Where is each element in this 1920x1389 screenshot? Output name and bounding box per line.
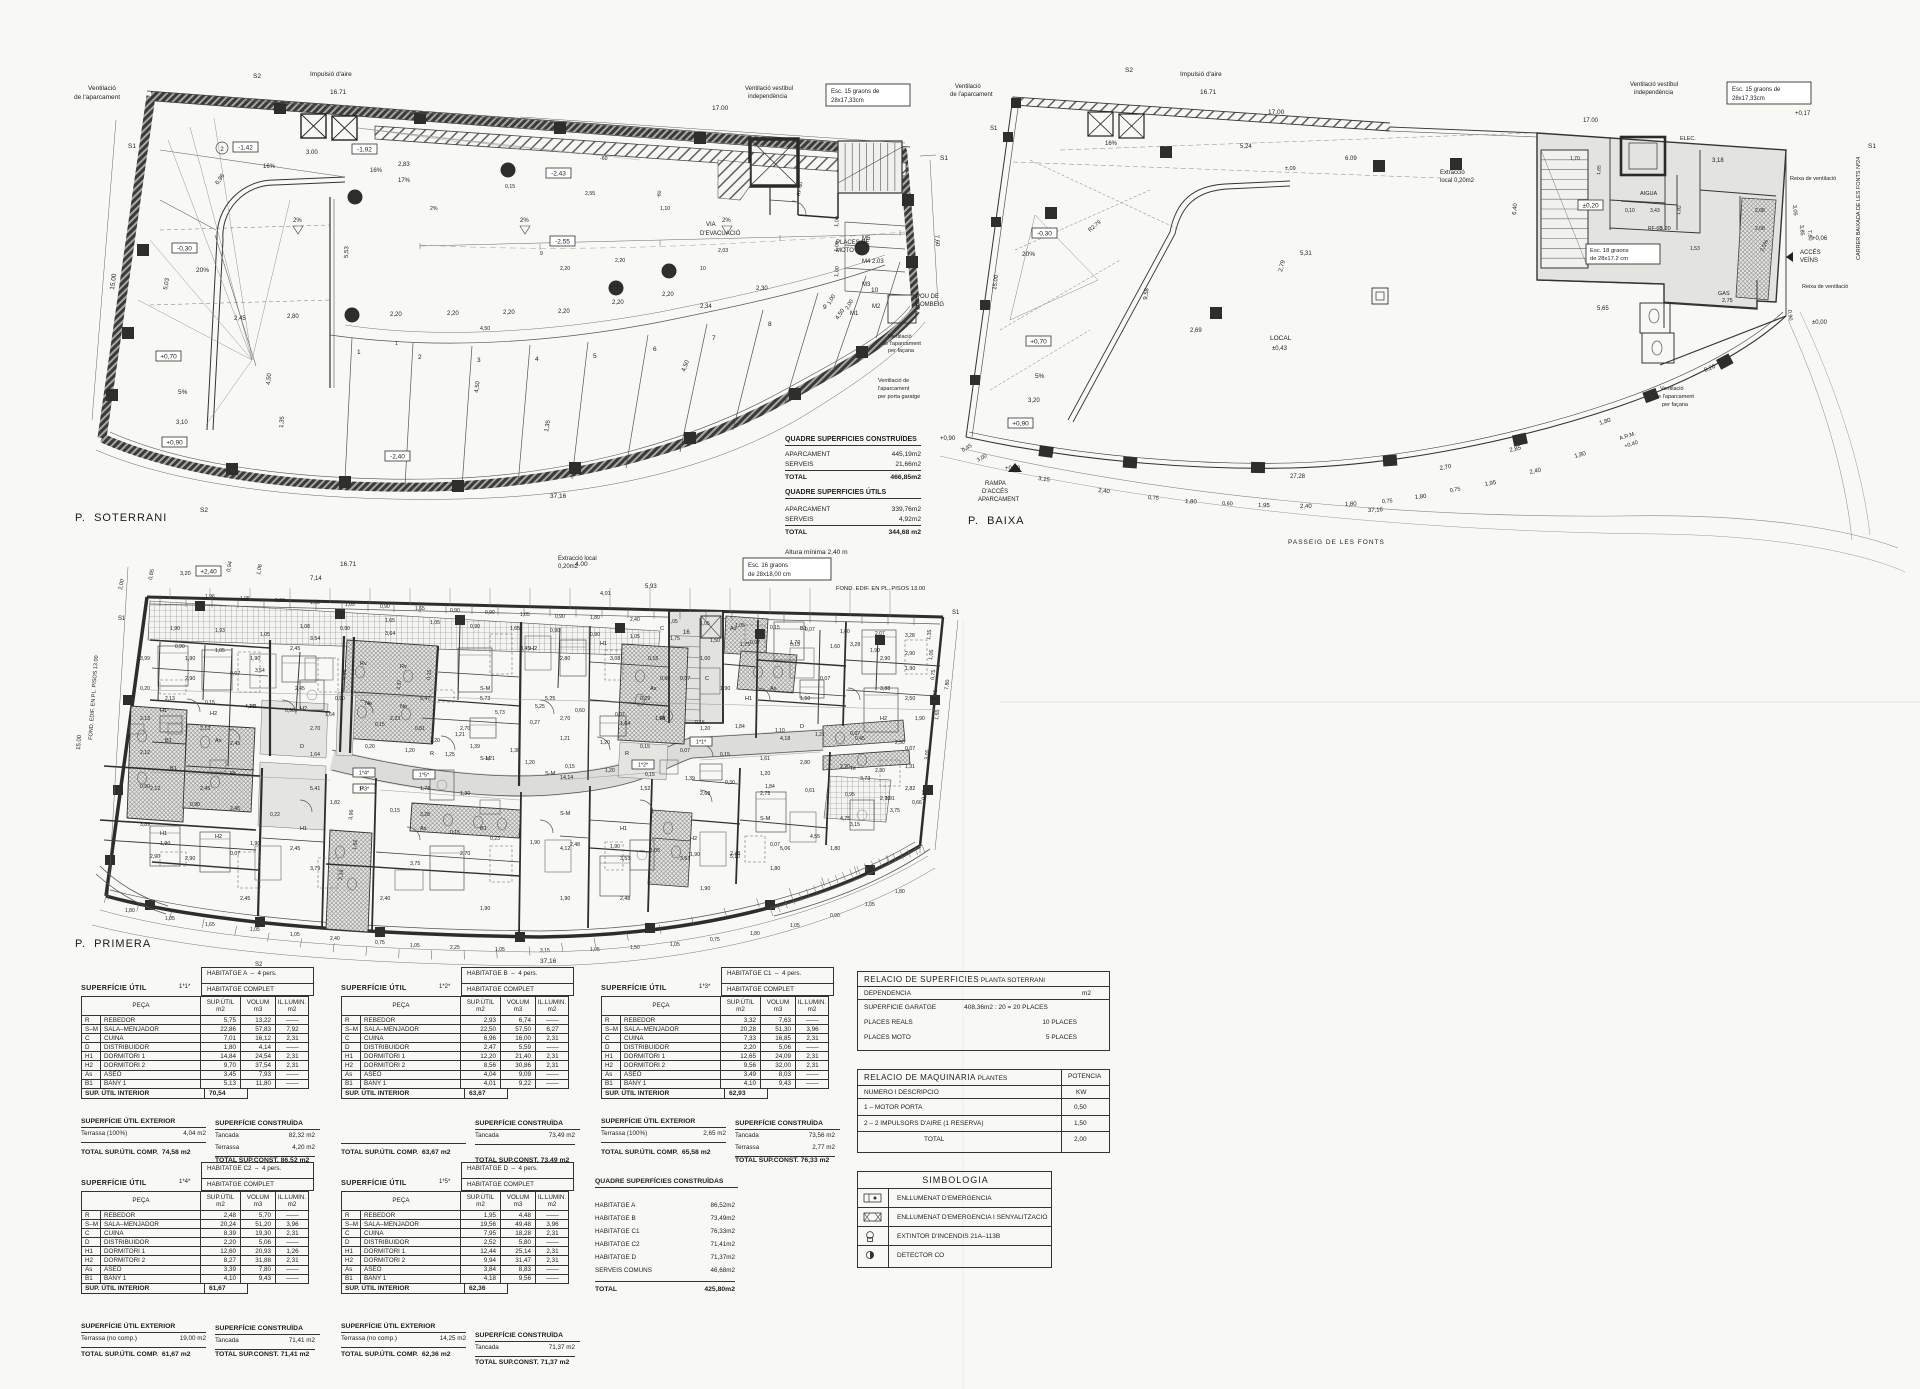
svg-text:0,60: 0,60 xyxy=(575,708,585,714)
svg-text:2,20: 2,20 xyxy=(612,300,624,306)
svg-text:1*2*: 1*2* xyxy=(638,763,649,769)
svg-text:1,05: 1,05 xyxy=(430,620,440,626)
svg-text:1,25: 1,25 xyxy=(445,752,455,758)
svg-text:H2: H2 xyxy=(690,836,697,842)
svg-text:2,90: 2,90 xyxy=(185,676,195,682)
svg-text:local 0,20m2: local 0,20m2 xyxy=(1440,178,1475,184)
svg-text:0,90: 0,90 xyxy=(485,610,495,616)
svg-text:10: 10 xyxy=(700,266,706,272)
svg-text:5,93: 5,93 xyxy=(645,584,657,590)
svg-text:R: R xyxy=(625,751,629,757)
svg-text:2,40: 2,40 xyxy=(630,617,640,623)
svg-text:1,20: 1,20 xyxy=(700,726,710,732)
svg-text:de 28x18,00 cm: de 28x18,00 cm xyxy=(748,572,791,578)
svg-text:2,40: 2,40 xyxy=(380,896,390,902)
svg-text:2,45: 2,45 xyxy=(290,846,300,852)
svg-text:1,05: 1,05 xyxy=(345,602,355,608)
svg-text:1,39: 1,39 xyxy=(685,776,695,782)
svg-text:0,22: 0,22 xyxy=(270,812,280,818)
svg-text:3,15: 3,15 xyxy=(850,822,860,828)
svg-text:3,85: 3,85 xyxy=(1798,225,1805,236)
svg-text:±0,00: ±0,00 xyxy=(1812,320,1828,326)
svg-text:Esc. 15 graons de: Esc. 15 graons de xyxy=(831,89,880,95)
svg-text:H1: H1 xyxy=(300,826,307,832)
svg-text:1,90: 1,90 xyxy=(700,886,710,892)
svg-text:1,21: 1,21 xyxy=(485,756,495,762)
svg-text:-1,92: -1,92 xyxy=(357,147,372,154)
svg-text:de l'aparcament: de l'aparcament xyxy=(74,94,120,101)
svg-text:3,88: 3,88 xyxy=(880,686,890,692)
svg-text:3,43: 3,43 xyxy=(1650,208,1660,214)
svg-text:2,83: 2,83 xyxy=(398,162,410,168)
svg-text:1,84: 1,84 xyxy=(735,724,745,730)
svg-text:0,15: 0,15 xyxy=(645,772,655,778)
svg-text:2,13: 2,13 xyxy=(140,716,150,722)
svg-text:3,96: 3,96 xyxy=(348,809,355,820)
svg-text:3,10: 3,10 xyxy=(176,420,188,426)
svg-text:1,84: 1,84 xyxy=(765,784,775,790)
svg-text:0,30: 0,30 xyxy=(725,780,735,786)
svg-text:1,35: 1,35 xyxy=(926,629,933,640)
svg-text:1,50: 1,50 xyxy=(710,638,720,644)
svg-text:Rv: Rv xyxy=(400,664,407,670)
svg-text:S1: S1 xyxy=(940,155,948,162)
svg-text:0,66: 0,66 xyxy=(912,800,922,806)
svg-text:1,90: 1,90 xyxy=(170,626,180,632)
svg-text:-2,40: -2,40 xyxy=(390,454,405,461)
svg-text:16%: 16% xyxy=(1105,141,1118,147)
svg-text:0,90: 0,90 xyxy=(590,632,600,638)
svg-text:M2: M2 xyxy=(872,304,881,310)
svg-text:2,45: 2,45 xyxy=(234,316,246,322)
svg-text:1,90: 1,90 xyxy=(610,844,620,850)
svg-text:37,16: 37,16 xyxy=(550,493,567,500)
svg-text:5,65: 5,65 xyxy=(1597,306,1609,312)
svg-text:l'aparcament: l'aparcament xyxy=(878,386,910,392)
svg-text:1: 1 xyxy=(357,349,361,356)
svg-text:3,89: 3,89 xyxy=(140,822,150,828)
svg-text:2,03: 2,03 xyxy=(718,248,728,254)
svg-text:+0,90: +0,90 xyxy=(940,436,956,442)
svg-text:0,90: 0,90 xyxy=(335,696,345,702)
svg-text:2,70: 2,70 xyxy=(310,726,320,732)
svg-text:37,16: 37,16 xyxy=(1368,507,1384,514)
svg-text:per façana: per façana xyxy=(888,348,915,354)
svg-text:1,20: 1,20 xyxy=(605,768,615,774)
svg-text:1,20: 1,20 xyxy=(600,740,610,746)
svg-text:3,20: 3,20 xyxy=(180,571,191,577)
svg-text:1,90: 1,90 xyxy=(655,716,665,722)
svg-text:1,35: 1,35 xyxy=(279,415,286,428)
svg-text:ACCÉS: ACCÉS xyxy=(1800,249,1821,256)
svg-text:2,80: 2,80 xyxy=(560,656,570,662)
svg-text:0,15: 0,15 xyxy=(695,720,705,726)
svg-text:independència: independència xyxy=(748,94,788,100)
svg-text:4,18: 4,18 xyxy=(780,736,790,742)
svg-text:3,05: 3,05 xyxy=(924,749,931,760)
svg-text:0,90: 0,90 xyxy=(340,626,350,632)
svg-text:4,01: 4,01 xyxy=(600,591,611,597)
svg-text:2,45: 2,45 xyxy=(290,646,300,652)
svg-text:1,90: 1,90 xyxy=(690,852,700,858)
svg-text:5,41: 5,41 xyxy=(310,786,320,792)
svg-text:4,20: 4,20 xyxy=(245,704,255,710)
svg-text:3,54: 3,54 xyxy=(255,668,265,674)
svg-text:1,20: 1,20 xyxy=(760,771,770,777)
svg-text:S2: S2 xyxy=(1125,67,1133,74)
svg-text:2,55: 2,55 xyxy=(585,191,595,197)
svg-text:1,90: 1,90 xyxy=(915,716,925,722)
svg-text:Esc. 16 graons: Esc. 16 graons xyxy=(748,563,788,569)
svg-text:2,20: 2,20 xyxy=(560,266,570,272)
svg-text:1,61: 1,61 xyxy=(760,756,770,762)
svg-text:1,90: 1,90 xyxy=(530,840,540,846)
svg-text:17%: 17% xyxy=(398,178,411,184)
svg-text:14,14: 14,14 xyxy=(560,775,573,781)
svg-text:+0,90: +0,90 xyxy=(166,440,183,447)
svg-text:D: D xyxy=(800,724,804,730)
svg-text:5,31: 5,31 xyxy=(1300,251,1312,257)
svg-text:1,05: 1,05 xyxy=(670,942,680,948)
svg-text:Ventilació: Ventilació xyxy=(955,84,981,90)
svg-text:1,30: 1,30 xyxy=(510,748,520,754)
svg-text:1,05: 1,05 xyxy=(495,947,505,953)
svg-text:0,15: 0,15 xyxy=(205,700,215,706)
svg-text:3,08: 3,08 xyxy=(610,656,620,662)
svg-text:2,34: 2,34 xyxy=(700,304,712,310)
svg-text:0,15: 0,15 xyxy=(770,625,780,631)
svg-text:5,20: 5,20 xyxy=(1660,226,1671,232)
svg-text:1,21: 1,21 xyxy=(815,732,825,738)
svg-text:1,00: 1,00 xyxy=(834,216,841,227)
svg-text:1: 1 xyxy=(395,341,398,347)
svg-text:B1: B1 xyxy=(480,826,487,832)
svg-text:20%: 20% xyxy=(196,267,209,274)
svg-text:0,23: 0,23 xyxy=(490,836,500,842)
svg-text:1,20: 1,20 xyxy=(430,738,440,744)
svg-text:5,73: 5,73 xyxy=(495,710,505,716)
svg-text:S1: S1 xyxy=(952,610,960,616)
svg-text:5,10: 5,10 xyxy=(730,854,740,860)
svg-text:+0,17: +0,17 xyxy=(1795,111,1811,117)
svg-text:de l'aparcament: de l'aparcament xyxy=(950,92,993,98)
svg-text:3,28: 3,28 xyxy=(850,642,860,648)
svg-text:S2: S2 xyxy=(200,507,208,514)
svg-text:per porta garatge: per porta garatge xyxy=(878,394,920,400)
svg-text:-0,30: -0,30 xyxy=(1037,231,1052,238)
svg-text:1,95: 1,95 xyxy=(1258,503,1270,509)
svg-text:1,91: 1,91 xyxy=(885,796,895,802)
svg-text:1,05: 1,05 xyxy=(165,916,175,922)
svg-text:7,80: 7,80 xyxy=(944,679,951,690)
svg-text:1,65: 1,65 xyxy=(310,600,320,606)
svg-text:1,80: 1,80 xyxy=(1345,501,1358,508)
svg-text:1,20: 1,20 xyxy=(525,760,535,766)
svg-text:MOTO: MOTO xyxy=(836,248,854,254)
svg-text:3,99: 3,99 xyxy=(140,656,150,662)
svg-text:4,96: 4,96 xyxy=(341,669,348,680)
svg-text:0,15: 0,15 xyxy=(648,656,658,662)
svg-text:2,90: 2,90 xyxy=(185,856,195,862)
svg-text:0,60: 0,60 xyxy=(1222,501,1233,507)
svg-text:4,12: 4,12 xyxy=(560,846,570,852)
svg-text:1,05: 1,05 xyxy=(410,943,420,949)
svg-text:0,07: 0,07 xyxy=(680,676,690,682)
svg-text:2,13: 2,13 xyxy=(200,726,210,732)
svg-text:1,00: 1,00 xyxy=(700,656,710,662)
svg-text:H2: H2 xyxy=(215,834,222,840)
svg-text:2,40: 2,40 xyxy=(1098,488,1111,495)
svg-text:1,31: 1,31 xyxy=(905,764,915,770)
svg-text:0,90: 0,90 xyxy=(175,644,185,650)
svg-text:2,70: 2,70 xyxy=(560,716,570,722)
svg-text:0,15: 0,15 xyxy=(375,722,385,728)
svg-text:3.00: 3.00 xyxy=(306,150,318,156)
svg-text:As: As xyxy=(215,738,222,744)
svg-text:27,28: 27,28 xyxy=(1290,474,1306,480)
svg-text:2,13: 2,13 xyxy=(165,696,175,702)
svg-text:1,82: 1,82 xyxy=(1676,205,1683,215)
svg-text:Extracció local: Extracció local xyxy=(558,556,597,562)
svg-text:Ventilació: Ventilació xyxy=(88,85,116,92)
svg-text:AIGUA: AIGUA xyxy=(1640,191,1657,197)
svg-text:1,80: 1,80 xyxy=(770,866,780,872)
svg-text:M3: M3 xyxy=(862,282,871,288)
svg-text:0,15: 0,15 xyxy=(565,764,575,770)
svg-text:2,48: 2,48 xyxy=(620,896,630,902)
svg-text:0,90: 0,90 xyxy=(830,913,840,919)
svg-text:1,90: 1,90 xyxy=(560,896,570,902)
svg-text:Ventilació: Ventilació xyxy=(1660,386,1684,392)
svg-text:0,15: 0,15 xyxy=(390,808,400,814)
svg-text:per façana: per façana xyxy=(1662,402,1689,408)
svg-text:H1: H1 xyxy=(745,696,752,702)
svg-text:0,45: 0,45 xyxy=(855,736,865,742)
svg-text:2,23: 2,23 xyxy=(390,716,400,722)
svg-text:S-M: S-M xyxy=(480,686,491,692)
svg-text:2,20: 2,20 xyxy=(662,292,674,298)
svg-text:3,73: 3,73 xyxy=(860,776,870,782)
svg-text:-2,43: -2,43 xyxy=(551,171,566,178)
svg-text:1*5*: 1*5* xyxy=(419,773,430,779)
svg-text:2%: 2% xyxy=(293,218,302,224)
svg-text:2: 2 xyxy=(418,354,422,361)
svg-text:Impulsió d'aire: Impulsió d'aire xyxy=(310,71,352,78)
svg-text:H2: H2 xyxy=(210,711,217,717)
svg-text:2,20: 2,20 xyxy=(840,764,850,770)
svg-text:Extracció: Extracció xyxy=(1440,170,1465,176)
svg-text:9: 9 xyxy=(823,304,827,311)
svg-text:0,90: 0,90 xyxy=(275,598,285,604)
svg-text:16%: 16% xyxy=(370,168,383,174)
svg-text:1,05: 1,05 xyxy=(240,596,250,602)
svg-text:1,05: 1,05 xyxy=(928,649,935,660)
svg-text:1,65: 1,65 xyxy=(415,606,425,612)
svg-text:As: As xyxy=(650,686,657,692)
svg-text:1,90: 1,90 xyxy=(185,656,195,662)
svg-text:16%: 16% xyxy=(263,164,276,170)
svg-text:S-M: S-M xyxy=(545,771,556,777)
svg-text:0,20: 0,20 xyxy=(365,744,375,750)
svg-text:5%: 5% xyxy=(1035,373,1045,380)
svg-text:7,14: 7,14 xyxy=(310,576,322,582)
svg-text:16.71: 16.71 xyxy=(330,89,347,96)
svg-text:0,07: 0,07 xyxy=(615,712,625,718)
svg-text:-60: -60 xyxy=(600,156,608,162)
svg-text:1,60: 1,60 xyxy=(830,644,840,650)
svg-text:1,05: 1,05 xyxy=(520,612,530,618)
svg-text:5,53: 5,53 xyxy=(344,246,350,259)
svg-text:0,29: 0,29 xyxy=(640,696,650,702)
svg-text:17.00: 17.00 xyxy=(1268,109,1285,116)
svg-text:5,25: 5,25 xyxy=(535,704,545,710)
svg-text:Esc. 15 graons de: Esc. 15 graons de xyxy=(1732,87,1781,93)
svg-text:1,53: 1,53 xyxy=(1690,246,1700,252)
svg-text:1,80: 1,80 xyxy=(1415,494,1428,501)
svg-text:VIA: VIA xyxy=(706,222,716,228)
svg-text:BOMBEIG: BOMBEIG xyxy=(916,302,944,308)
svg-text:0,60: 0,60 xyxy=(660,676,670,682)
svg-text:PLACES DE: PLACES DE xyxy=(836,240,870,246)
svg-text:S1: S1 xyxy=(128,143,136,150)
svg-text:1,05: 1,05 xyxy=(250,927,260,933)
svg-text:2,70: 2,70 xyxy=(460,851,470,857)
svg-text:1,05: 1,05 xyxy=(215,648,225,654)
svg-text:5,24: 5,24 xyxy=(1240,144,1252,150)
svg-text:POU DE: POU DE xyxy=(916,294,939,300)
svg-text:2,07: 2,07 xyxy=(875,631,885,637)
svg-text:1,05: 1,05 xyxy=(668,619,678,625)
svg-text:0,10: 0,10 xyxy=(1625,208,1635,214)
svg-text:3,05: 3,05 xyxy=(1791,205,1798,216)
svg-text:0,20m2: 0,20m2 xyxy=(558,564,579,570)
svg-text:4: 4 xyxy=(535,356,539,363)
svg-text:RAMPA: RAMPA xyxy=(985,481,1006,487)
svg-text:0,75: 0,75 xyxy=(930,669,937,680)
svg-text:0,90: 0,90 xyxy=(380,604,390,610)
svg-text:1,80: 1,80 xyxy=(750,931,760,937)
svg-text:6,40: 6,40 xyxy=(1512,202,1519,215)
svg-text:-0,30: -0,30 xyxy=(177,246,192,253)
svg-text:2,75: 2,75 xyxy=(1722,298,1733,304)
svg-text:2,80: 2,80 xyxy=(800,760,810,766)
svg-text:1,65: 1,65 xyxy=(510,626,520,632)
svg-text:1,05: 1,05 xyxy=(700,621,710,627)
svg-text:0,61: 0,61 xyxy=(805,788,815,794)
svg-text:2,20: 2,20 xyxy=(390,312,402,318)
svg-text:2,82: 2,82 xyxy=(905,786,915,792)
svg-text:1,60: 1,60 xyxy=(840,629,850,635)
svg-text:LOCAL: LOCAL xyxy=(1270,335,1292,342)
svg-text:1,39: 1,39 xyxy=(470,744,480,750)
svg-text:2,08: 2,08 xyxy=(1755,208,1765,214)
svg-text:0,75: 0,75 xyxy=(375,940,385,946)
svg-text:1,70: 1,70 xyxy=(1570,156,1580,162)
svg-text:6: 6 xyxy=(653,346,657,353)
svg-text:4,50: 4,50 xyxy=(480,326,490,332)
svg-text:5,73: 5,73 xyxy=(480,696,490,702)
svg-text:2,30: 2,30 xyxy=(756,286,768,292)
svg-text:0,90: 0,90 xyxy=(140,784,150,790)
svg-text:CARRER BAIXADA DE LES FONTS Nº: CARRER BAIXADA DE LES FONTS Nº24 xyxy=(1855,157,1862,260)
svg-text:5%: 5% xyxy=(178,389,188,396)
svg-text:2,68: 2,68 xyxy=(700,791,710,797)
svg-text:de l'aparcament: de l'aparcament xyxy=(882,341,921,347)
svg-text:R: R xyxy=(360,786,364,792)
svg-text:2,45: 2,45 xyxy=(200,786,210,792)
svg-text:2,12: 2,12 xyxy=(150,786,160,792)
svg-text:1,05: 1,05 xyxy=(650,848,660,854)
svg-text:APARCAMENT: APARCAMENT xyxy=(978,497,1020,503)
svg-text:ELEC.: ELEC. xyxy=(1680,136,1696,142)
svg-text:Ventilació de: Ventilació de xyxy=(878,378,909,384)
svg-text:VEÏNS: VEÏNS xyxy=(1800,257,1818,264)
svg-text:Ne: Ne xyxy=(365,701,372,707)
svg-text:C: C xyxy=(705,676,709,682)
svg-text:15.00: 15.00 xyxy=(76,734,83,750)
svg-text:0,15: 0,15 xyxy=(640,744,650,750)
svg-text:1,90: 1,90 xyxy=(870,648,880,654)
svg-text:3,67: 3,67 xyxy=(680,856,690,862)
svg-text:0,15: 0,15 xyxy=(790,642,800,648)
svg-text:3,54: 3,54 xyxy=(310,636,320,642)
svg-text:FOND. EDIF. EN PL. PISOS 1: FOND. EDIF. EN PL. PISOS 13.00 xyxy=(836,586,925,592)
svg-text:H1: H1 xyxy=(160,708,167,714)
svg-text:S1: S1 xyxy=(990,126,998,132)
svg-text:1,90: 1,90 xyxy=(250,656,260,662)
svg-text:4,55: 4,55 xyxy=(810,834,820,840)
svg-text:1,82: 1,82 xyxy=(330,800,340,806)
svg-text:1,75: 1,75 xyxy=(670,636,680,642)
svg-text:6.09: 6.09 xyxy=(1345,156,1357,162)
svg-text:-1,42: -1,42 xyxy=(238,145,253,152)
svg-text:+0,70: +0,70 xyxy=(160,354,177,361)
svg-text:Esc. 18 graons: Esc. 18 graons xyxy=(1590,248,1629,254)
svg-text:1,90: 1,90 xyxy=(720,686,730,692)
svg-text:0,75: 0,75 xyxy=(1148,495,1159,502)
svg-text:17.00: 17.00 xyxy=(712,105,729,112)
svg-text:7,80: 7,80 xyxy=(1806,230,1813,241)
svg-text:GAS: GAS xyxy=(1718,291,1730,297)
svg-text:1,80: 1,80 xyxy=(830,846,840,852)
svg-text:1,05: 1,05 xyxy=(790,923,800,929)
svg-text:M1: M1 xyxy=(850,311,859,317)
svg-text:3,64: 3,64 xyxy=(385,631,395,637)
svg-text:0,95: 0,95 xyxy=(845,792,855,798)
svg-text:2,69: 2,69 xyxy=(1190,328,1202,334)
svg-text:3,79: 3,79 xyxy=(310,866,320,872)
svg-text:independència: independència xyxy=(1634,90,1674,96)
svg-text:de l'aparcament: de l'aparcament xyxy=(1655,394,1694,400)
svg-text:+0,06: +0,06 xyxy=(1812,236,1828,242)
svg-text:de 28x17.2 cm: de 28x17.2 cm xyxy=(1590,256,1628,262)
svg-text:2,80: 2,80 xyxy=(287,314,299,320)
svg-text:3,53: 3,53 xyxy=(620,856,630,862)
svg-text:C: C xyxy=(660,626,664,632)
svg-text:1,96: 1,96 xyxy=(205,594,215,600)
svg-text:Ventilació vestíbul: Ventilació vestíbul xyxy=(1630,82,1678,88)
svg-text:-60: -60 xyxy=(656,190,663,198)
svg-text:2,45: 2,45 xyxy=(240,896,250,902)
svg-text:2,50: 2,50 xyxy=(905,696,915,702)
svg-text:1,08: 1,08 xyxy=(300,624,310,630)
svg-text:1*4*: 1*4* xyxy=(359,771,370,777)
svg-text:0,15: 0,15 xyxy=(505,184,515,190)
svg-text:H1: H1 xyxy=(160,831,167,837)
svg-text:0,07: 0,07 xyxy=(820,676,830,682)
svg-text:3: 3 xyxy=(477,357,481,364)
svg-text:0,90: 0,90 xyxy=(550,628,560,634)
